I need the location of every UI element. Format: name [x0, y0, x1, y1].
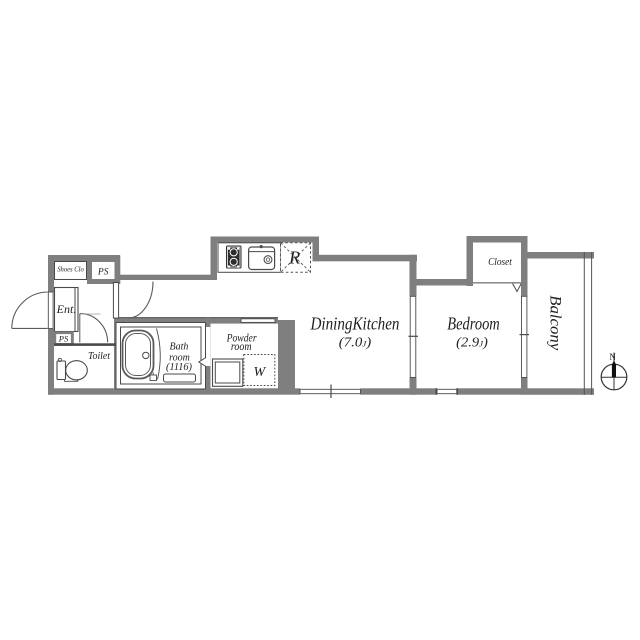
svg-text:Bath: Bath	[170, 341, 189, 352]
svg-text:N: N	[609, 352, 616, 362]
svg-text:Ent.: Ent.	[56, 302, 77, 316]
svg-text:Balcony: Balcony	[547, 295, 564, 350]
svg-text:Toilet: Toilet	[88, 351, 111, 362]
svg-text:Bedroom: Bedroom	[447, 313, 500, 333]
svg-text:(2.9J): (2.9J)	[456, 335, 488, 350]
svg-text:Shoes Clo: Shoes Clo	[57, 265, 84, 273]
svg-text:DiningKitchen: DiningKitchen	[310, 313, 400, 333]
svg-text:room: room	[231, 341, 252, 353]
svg-text:(1116): (1116)	[166, 362, 193, 373]
svg-text:W: W	[253, 365, 266, 380]
svg-text:(7.0J): (7.0J)	[339, 335, 372, 350]
svg-text:R: R	[288, 247, 300, 267]
svg-text:PS: PS	[58, 334, 69, 344]
svg-text:PS: PS	[97, 267, 109, 277]
svg-text:Closet: Closet	[488, 257, 513, 268]
